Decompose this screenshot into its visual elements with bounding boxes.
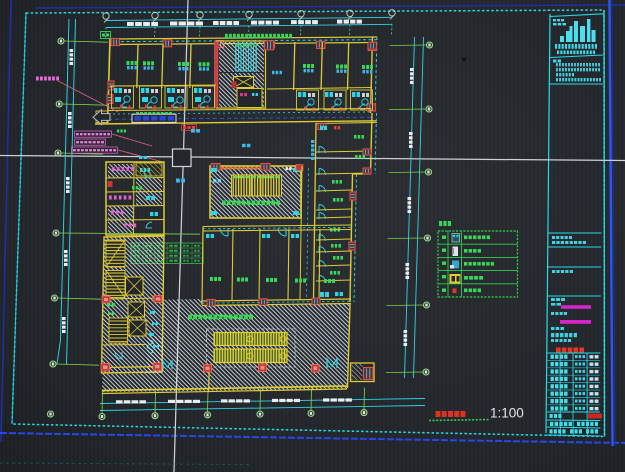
svg-text:1:100: 1:100 <box>490 406 524 421</box>
